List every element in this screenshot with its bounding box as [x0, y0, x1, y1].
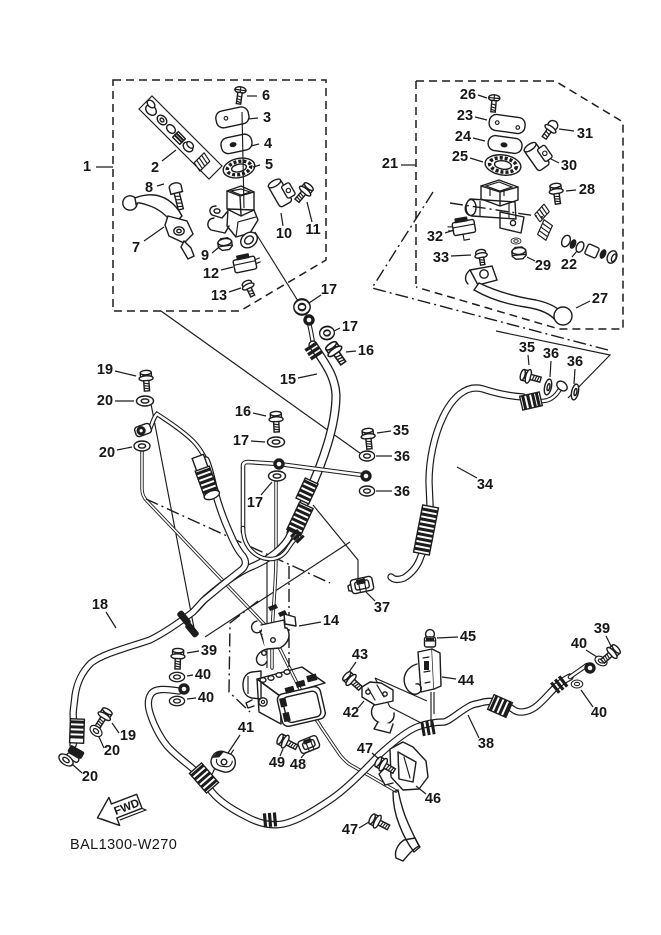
- svg-text:9: 9: [201, 248, 209, 264]
- svg-text:20: 20: [97, 393, 113, 409]
- svg-text:16: 16: [235, 404, 251, 420]
- svg-text:BAL1300-W270: BAL1300-W270: [70, 837, 177, 853]
- svg-text:29: 29: [535, 258, 551, 274]
- svg-text:20: 20: [104, 743, 120, 759]
- svg-text:10: 10: [276, 226, 292, 242]
- svg-text:14: 14: [323, 613, 339, 629]
- svg-text:17: 17: [342, 319, 358, 335]
- svg-text:36: 36: [394, 449, 410, 465]
- svg-text:24: 24: [455, 129, 471, 145]
- svg-text:18: 18: [92, 597, 108, 613]
- svg-text:17: 17: [321, 282, 337, 298]
- svg-text:36: 36: [567, 354, 583, 370]
- svg-text:28: 28: [579, 182, 595, 198]
- svg-text:32: 32: [427, 229, 443, 245]
- svg-text:46: 46: [425, 791, 441, 807]
- svg-text:44: 44: [458, 673, 474, 689]
- svg-text:40: 40: [195, 667, 211, 683]
- svg-text:26: 26: [460, 87, 476, 103]
- svg-text:49: 49: [269, 755, 285, 771]
- svg-text:42: 42: [343, 705, 359, 721]
- svg-text:11: 11: [305, 222, 320, 238]
- svg-text:34: 34: [477, 477, 493, 493]
- svg-text:39: 39: [594, 621, 610, 637]
- svg-text:38: 38: [478, 736, 494, 752]
- svg-text:30: 30: [561, 158, 577, 174]
- svg-text:13: 13: [211, 288, 227, 304]
- svg-text:7: 7: [132, 240, 140, 256]
- svg-text:22: 22: [561, 257, 577, 273]
- svg-text:48: 48: [290, 757, 306, 773]
- svg-text:25: 25: [452, 149, 468, 165]
- svg-text:20: 20: [82, 769, 98, 785]
- svg-text:23: 23: [457, 108, 473, 124]
- svg-text:16: 16: [358, 343, 374, 359]
- svg-text:33: 33: [433, 250, 449, 266]
- svg-text:31: 31: [577, 126, 593, 142]
- svg-text:4: 4: [264, 136, 272, 152]
- svg-text:2: 2: [151, 160, 159, 176]
- svg-text:20: 20: [99, 445, 115, 461]
- svg-text:36: 36: [394, 484, 410, 500]
- svg-text:36: 36: [543, 346, 559, 362]
- svg-text:47: 47: [357, 741, 373, 757]
- svg-text:19: 19: [97, 362, 113, 378]
- svg-text:39: 39: [201, 643, 217, 659]
- svg-text:5: 5: [265, 157, 273, 173]
- svg-text:3: 3: [263, 110, 271, 126]
- svg-text:17: 17: [247, 495, 263, 511]
- svg-text:40: 40: [571, 636, 587, 652]
- svg-text:40: 40: [198, 690, 214, 706]
- svg-text:12: 12: [203, 266, 219, 282]
- svg-text:47: 47: [342, 822, 358, 838]
- svg-text:35: 35: [393, 423, 409, 439]
- svg-text:1: 1: [83, 159, 91, 175]
- svg-text:45: 45: [460, 629, 476, 645]
- svg-text:21: 21: [382, 156, 398, 172]
- svg-text:37: 37: [374, 600, 390, 616]
- svg-text:8: 8: [145, 180, 153, 196]
- svg-text:43: 43: [352, 647, 368, 663]
- svg-text:6: 6: [262, 88, 270, 104]
- svg-text:41: 41: [238, 720, 254, 736]
- svg-text:19: 19: [120, 728, 136, 744]
- svg-text:27: 27: [592, 291, 608, 307]
- svg-text:40: 40: [591, 705, 607, 721]
- svg-text:35: 35: [519, 340, 535, 356]
- svg-text:17: 17: [233, 433, 249, 449]
- svg-text:15: 15: [280, 372, 296, 388]
